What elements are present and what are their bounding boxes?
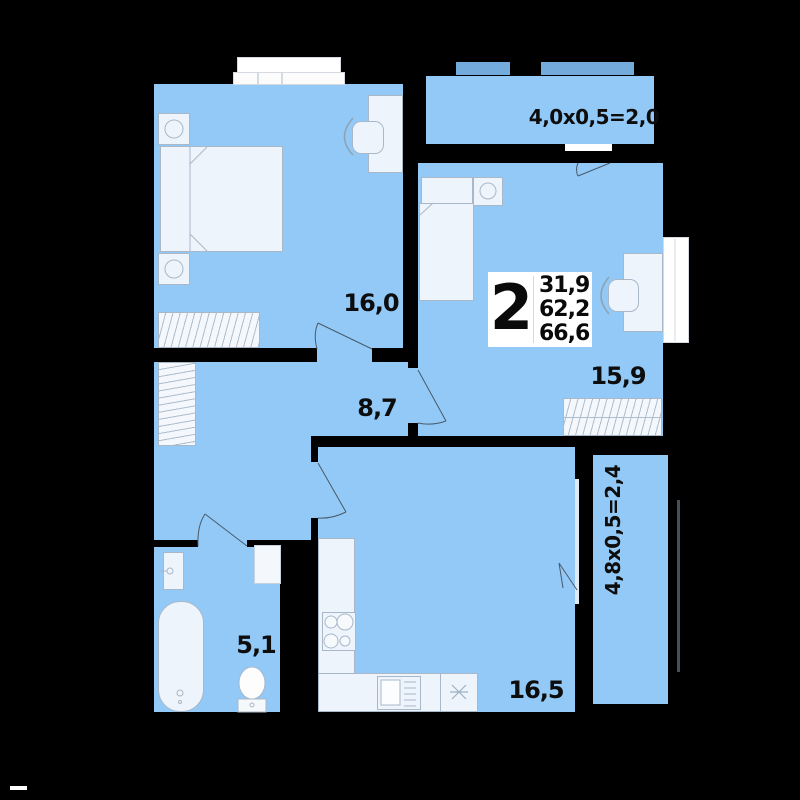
- dishwasher: [377, 676, 421, 710]
- sink-bathroom: [163, 552, 184, 590]
- door-opening-living: [408, 368, 418, 423]
- wardrobe-living: [563, 398, 662, 436]
- door-opening-kitchen: [311, 462, 318, 518]
- area-total: 66,6: [539, 322, 592, 346]
- bedside-table: [473, 177, 503, 206]
- balcony-door-opening-living: [565, 144, 612, 151]
- window-bedroom-sill: [233, 72, 345, 85]
- double-bed: [160, 146, 283, 252]
- room-hall-lower: [154, 436, 311, 540]
- area-figures: 31,9 62,2 66,6: [534, 272, 592, 347]
- single-bed: [419, 203, 474, 301]
- label-kitchen-area: 16,5: [508, 676, 563, 704]
- single-bed-head: [421, 177, 473, 204]
- wardrobe-bedroom: [158, 312, 260, 348]
- door-opening-bathroom: [198, 540, 247, 547]
- balcony-window-kitchen: [575, 479, 579, 604]
- label-bathroom-area: 5,1: [236, 631, 276, 659]
- area-apartment: 62,2: [539, 298, 592, 322]
- kitchen-sink-cell: [440, 673, 478, 712]
- unit-info-badge: 2 31,9 62,2 66,6: [488, 272, 592, 347]
- chair-living: [608, 279, 639, 312]
- label-balcony-top: 4,0x0,5=2,0: [529, 105, 659, 129]
- window-bedroom-top: [237, 57, 341, 73]
- adjacent-balcony-edge: [541, 62, 634, 75]
- label-living-area: 15,9: [590, 362, 645, 390]
- duct-shaft: [254, 545, 281, 584]
- adjacent-balcony-edge: [456, 62, 510, 75]
- nightstand: [158, 253, 190, 285]
- area-living: 31,9: [539, 274, 592, 298]
- nightstand: [158, 113, 190, 145]
- artifact-dash: [10, 786, 27, 790]
- window-living-right: [663, 237, 689, 343]
- label-bedroom-area: 16,0: [343, 289, 398, 317]
- chair-bedroom: [352, 121, 384, 154]
- room-count: 2: [488, 272, 533, 347]
- floor-plan: 2 31,9 62,2 66,6 16,0 8,7 15,9 5,1 16,5 …: [0, 0, 800, 800]
- label-hall-area: 8,7: [357, 394, 397, 422]
- door-opening-bedroom: [317, 348, 372, 362]
- closet-hall: [158, 362, 196, 446]
- balcony-rail-line: [677, 500, 680, 672]
- label-balcony-right: 4,8x0,5=2,4: [601, 465, 625, 595]
- bathtub: [158, 601, 204, 712]
- stove: [322, 612, 356, 651]
